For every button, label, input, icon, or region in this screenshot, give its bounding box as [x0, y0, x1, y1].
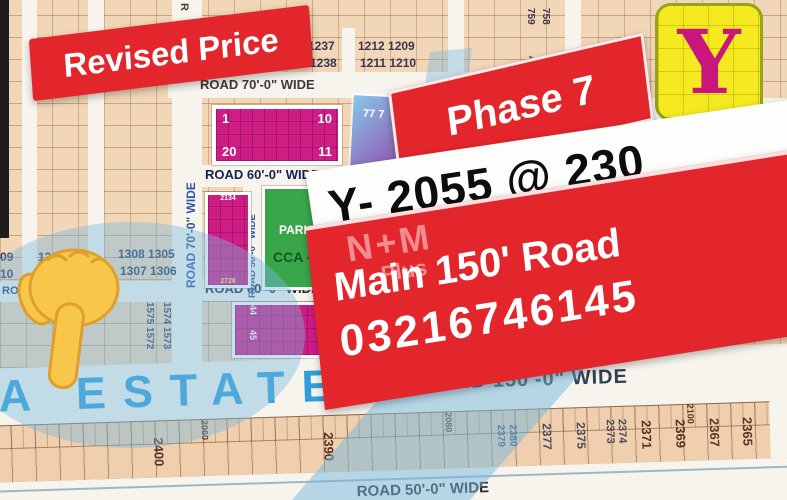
- block-plot-number: 10: [318, 111, 332, 126]
- sector-y-letter: Y: [678, 18, 741, 106]
- magenta-block-top: 1 10 20 11: [212, 105, 342, 165]
- plot-number: 2374: [616, 419, 629, 444]
- block-plot-number: 77 7: [363, 108, 385, 121]
- block-plot-number: 1: [222, 111, 229, 126]
- flyer-canvas: ROAD 70'-0" WIDE ROAD 60'-0" WIDE ROAD 6…: [0, 0, 787, 500]
- sector-y-marker: Y: [655, 3, 763, 121]
- plot-number: 2080: [443, 412, 454, 432]
- block-plot-number: 45: [248, 330, 258, 340]
- plot-number: 2375: [574, 422, 589, 449]
- plot-number: 2400: [151, 437, 167, 466]
- road-strip: [342, 28, 355, 72]
- magenta-block-mid: 2134 2728: [205, 192, 251, 288]
- plot-number: 2390: [321, 432, 337, 461]
- plot-number: 10: [0, 267, 13, 281]
- plot-number: 1308 1305: [118, 247, 175, 261]
- road-strip: [769, 399, 787, 458]
- plot-number: 2373: [604, 419, 617, 444]
- block-plot-number: 2134: [208, 195, 248, 202]
- plot-number: 1307 1306: [120, 264, 177, 278]
- block-plot-number: 2728: [208, 278, 248, 285]
- plot-number: 2371: [639, 420, 655, 449]
- plot-number: 1574 1573: [161, 302, 172, 349]
- photo-edge: [0, 0, 9, 238]
- plot-number: 1238: [310, 56, 337, 70]
- plot-number: 2100: [685, 404, 696, 424]
- plot-number: 2060: [199, 420, 210, 440]
- plot-number: 1575 1572: [144, 302, 155, 349]
- plot-number: 2380: [507, 424, 519, 447]
- plot-number: 2365: [740, 417, 756, 446]
- road-label-70-wide: ROAD 70'-0" WIDE: [200, 77, 315, 92]
- plot-number: 758: [540, 8, 551, 25]
- plot-number: 2367: [707, 418, 723, 447]
- plot-number: 2379: [495, 425, 507, 448]
- block-plot-number: 44: [248, 305, 258, 315]
- plot-number: 1211 1210: [360, 56, 416, 70]
- road-label-60-upper: ROAD 60'-0" WIDE: [205, 167, 320, 182]
- road-label-70-vertical: ROAD 70'-0" WIDE: [184, 182, 198, 288]
- pointing-down-hand-icon: [14, 244, 126, 404]
- plot-number: 1212 1209: [358, 39, 415, 53]
- block-plot-number: 11: [318, 144, 332, 159]
- plot-number: 2377: [540, 423, 555, 450]
- cca-label: CCA -: [273, 249, 311, 265]
- plot-number: 759: [525, 8, 536, 25]
- block-plot-number: 20: [222, 144, 236, 159]
- road-label-r: R: [178, 3, 190, 11]
- plot-number: 09: [0, 250, 13, 264]
